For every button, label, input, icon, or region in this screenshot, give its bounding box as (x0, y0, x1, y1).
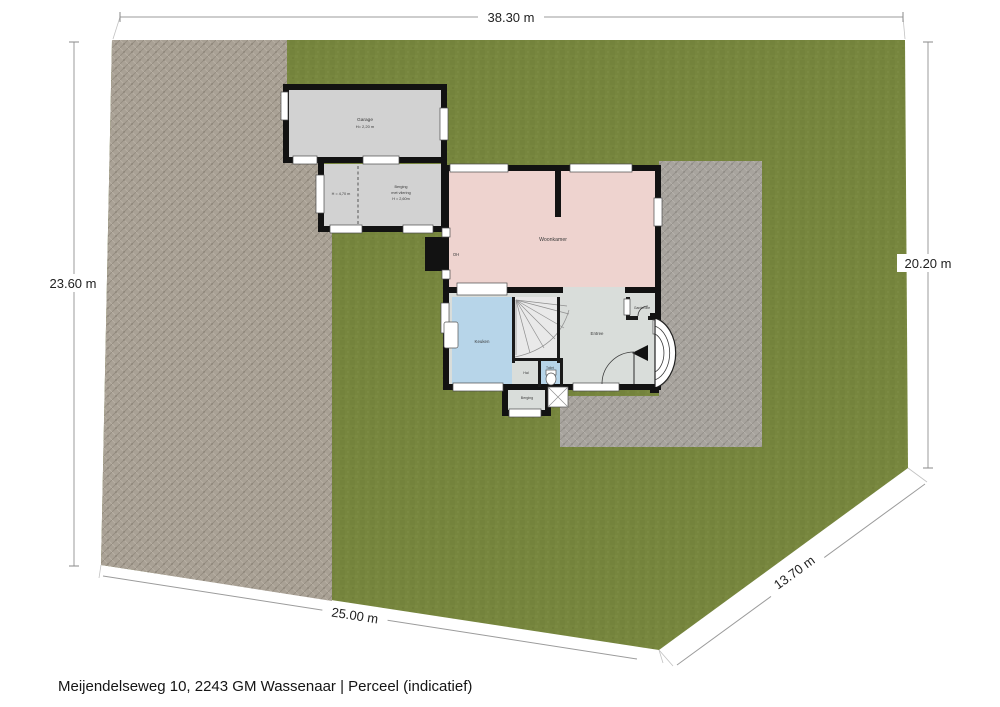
site-plan: Garage H= 2,20 m H = 4,70 m Berging met … (0, 0, 1000, 707)
chimney (425, 237, 445, 271)
toilet-bowl (546, 373, 556, 385)
berging-height-label: H = 2,60m (392, 197, 410, 201)
dim-left-label: 23.60 m (50, 276, 97, 291)
plan-caption: Meijendelseweg 10, 2243 GM Wassenaar | P… (58, 678, 472, 695)
hal-label: Hal (523, 371, 529, 375)
fireplace-label: OH (453, 252, 459, 257)
kitchen-sink (444, 322, 458, 348)
berging-label: Berging (394, 185, 407, 189)
garage-height-label: H= 2,20 m (356, 124, 375, 129)
berging-side-height-label: H = 4,70 m (332, 192, 351, 196)
entree-label: Entree (591, 331, 604, 336)
berging-klein-label: Berging (521, 396, 533, 400)
berging-klein-floor (508, 390, 545, 410)
dim-right-label: 20.20 m (905, 256, 952, 271)
woonkamer-floor (449, 171, 655, 287)
dim-top-label: 38.30 m (488, 10, 535, 25)
stairs-floor (515, 297, 557, 361)
berging-note-label: met vliering (391, 191, 410, 195)
toilet-label: Toilet (546, 366, 554, 370)
garderobe-label: Garderobe (634, 306, 650, 310)
dimension-top: 38.30 m (113, 8, 905, 39)
woonkamer-entree-opening (563, 287, 625, 293)
woonkamer-label: Woonkamer (539, 237, 567, 243)
dimension-left: 23.60 m (42, 42, 104, 566)
floor-drain (548, 387, 568, 407)
bay-window (457, 283, 507, 295)
keuken-label: Keuken (475, 339, 490, 344)
garage-label: Garage (357, 117, 373, 123)
site-plan-page: Garage H= 2,20 m H = 4,70 m Berging met … (0, 0, 1000, 707)
